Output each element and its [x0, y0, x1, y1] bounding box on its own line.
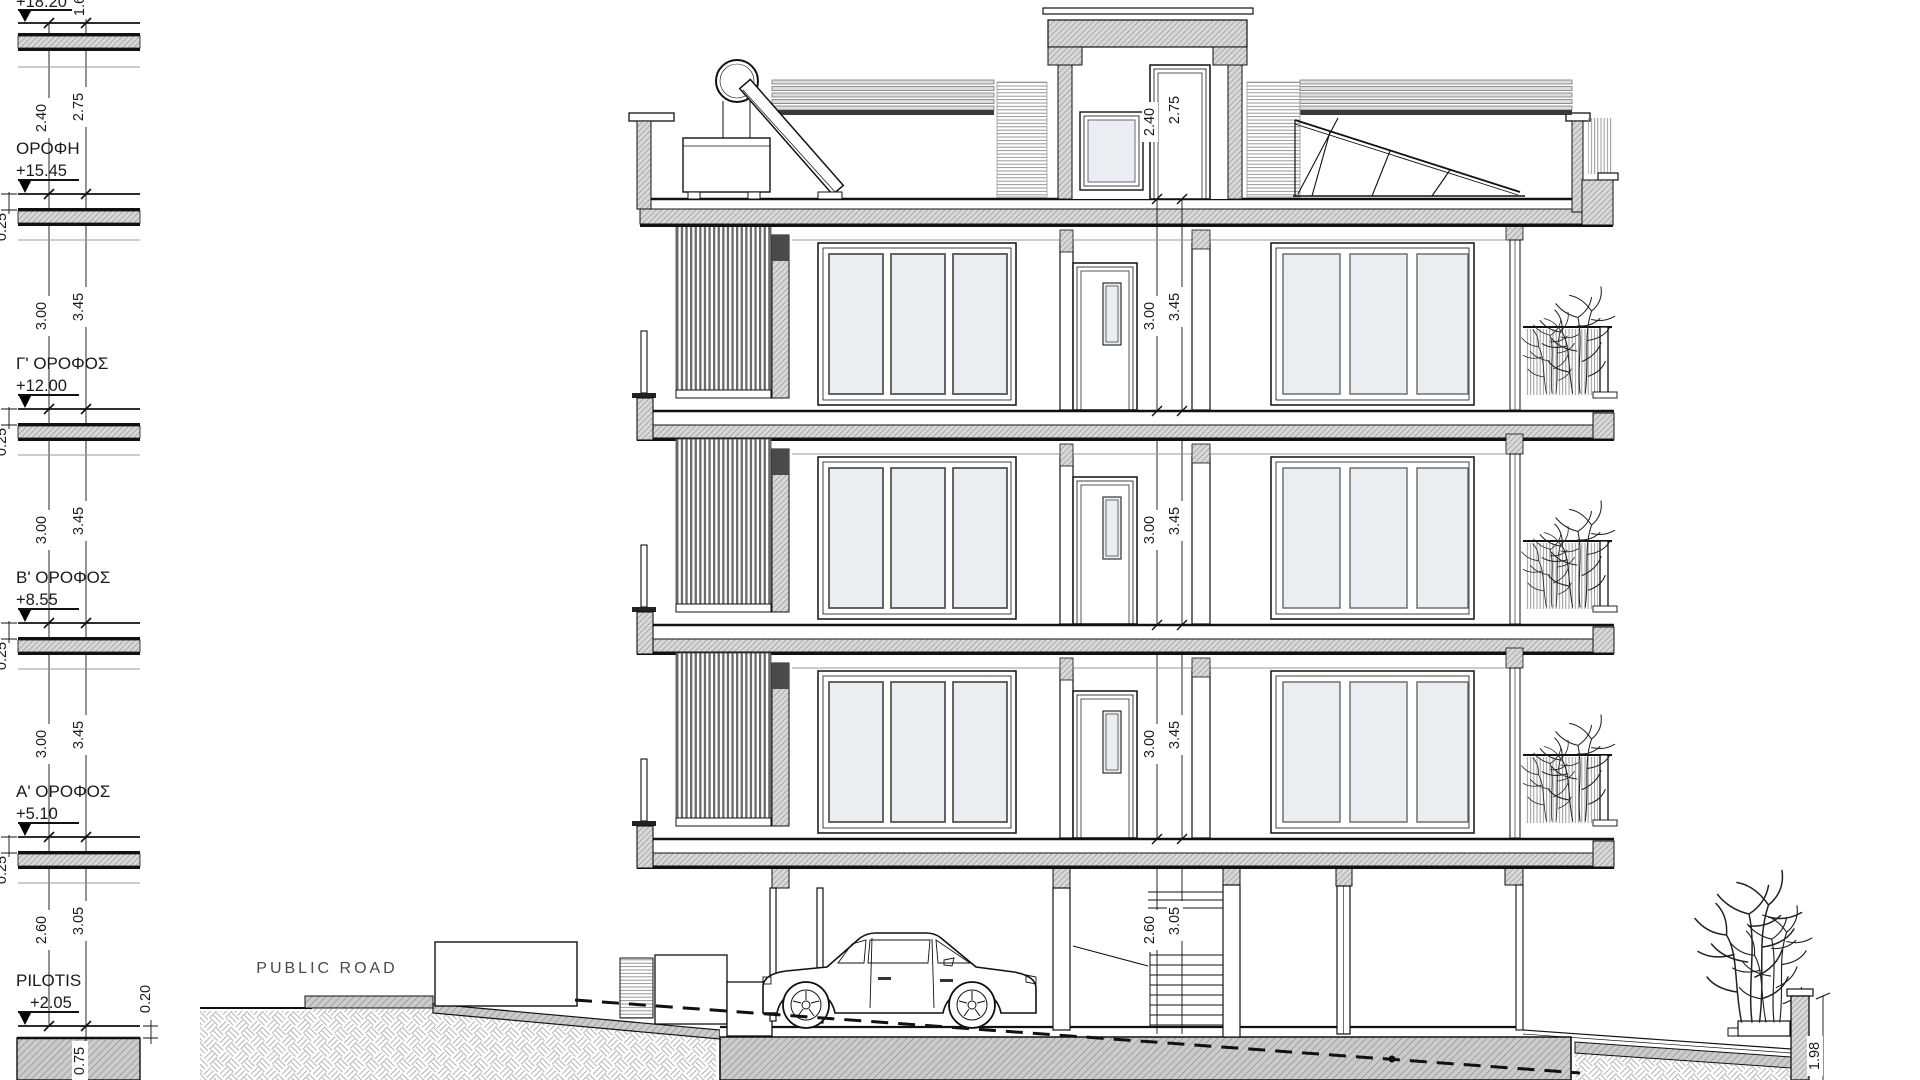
- level-name: PILOTIS: [16, 971, 81, 990]
- level-elevation: +2.05: [30, 994, 72, 1012]
- louver-screen: [1247, 82, 1300, 197]
- parapet-coping: [629, 113, 674, 121]
- datum-triangle-icon: [19, 11, 31, 22]
- dim-ground-slab: 0.75: [72, 1047, 88, 1075]
- datum-triangle-icon: [19, 396, 31, 408]
- datum-triangle-icon: [19, 181, 31, 193]
- planter-step: [1728, 1028, 1738, 1036]
- dim-floor-total: 3.45: [71, 293, 87, 321]
- wall-coping: [1787, 989, 1813, 996]
- tower-roof-slab: [1048, 20, 1247, 47]
- step-coping: [1598, 173, 1618, 180]
- dim-floor-step: 0.20: [138, 985, 158, 1044]
- left-dimension-column: +18.20 ΟΡΟΦΗ +15.45 Γ' ΟΡΟΦΟΣ +12.00 Β' …: [0, 0, 158, 1080]
- dim-roof-clear: 2.40: [1142, 108, 1158, 136]
- car-wheel: [783, 982, 829, 1028]
- sloped-canopy: [1293, 118, 1525, 196]
- dim-floor-total: 3.45: [71, 721, 87, 749]
- dim-rear-wall: 1.98: [1807, 993, 1830, 1080]
- pilotis-column: [1516, 885, 1523, 1030]
- pilotis-floor-strip: [720, 1028, 1523, 1037]
- dim-pilotis-clear: 2.60: [1142, 916, 1158, 944]
- roof-slab-hatch: [640, 209, 1613, 224]
- level-pilotis: PILOTIS +2.05: [16, 971, 140, 1031]
- dim-slab: 0.25: [0, 856, 10, 884]
- dim-pilotis-total: 3.05: [71, 907, 87, 935]
- level-floor2: Β' ΟΡΟΦΟΣ +8.55: [1, 568, 140, 643]
- svg-text:0.20: 0.20: [138, 985, 154, 1013]
- column-stub: [772, 866, 789, 888]
- level-elevation: +15.45: [16, 162, 67, 180]
- dim-floor-clear: 3.00: [34, 516, 50, 544]
- datum-triangle-icon: [19, 824, 31, 836]
- roof-screen-slats: [1588, 118, 1612, 174]
- dim-slab: 0.25: [0, 213, 10, 241]
- tower-wall-right: [1228, 47, 1242, 199]
- stair-core-wall-right: [1223, 885, 1240, 1037]
- stair-tower: 2.40 2.75: [1043, 8, 1253, 227]
- tower-door: [1150, 65, 1210, 199]
- tower-wall-left: [1058, 47, 1072, 199]
- level-roof: ΟΡΟΦΗ +15.45: [1, 139, 140, 214]
- earth-hatch-left: [200, 1009, 716, 1080]
- dim-pilotis-clear: 2.60: [34, 916, 50, 944]
- louvered-gate: [620, 958, 653, 1018]
- level-name: Γ' ΟΡΟΦΟΣ: [16, 354, 108, 373]
- dim-pilotis-total: 3.05: [1167, 907, 1183, 935]
- architectural-section-sheet: 3.00 3.45 +18.20: [0, 0, 1920, 1080]
- dim-slab: 0.25: [0, 428, 10, 456]
- dim-slab: 0.25: [0, 642, 10, 670]
- roof-level: 2.40 2.75: [629, 8, 1618, 227]
- core-wall-stub: [1053, 866, 1070, 888]
- tower-coping: [1043, 8, 1253, 14]
- ground-node-dot: [1389, 1056, 1396, 1063]
- street-boundary-wall: [435, 942, 577, 1006]
- tower-beam-right: [1213, 47, 1247, 65]
- datum-triangle-icon: [19, 610, 31, 622]
- parapet-left: [637, 121, 651, 209]
- tower-window: [1080, 112, 1143, 190]
- level-elevation: +12.00: [16, 377, 67, 395]
- dim-top-partial: 1.60: [72, 0, 88, 16]
- garden-wall: [655, 955, 727, 1024]
- car-wheel: [949, 982, 995, 1028]
- dim-floor-clear: 3.00: [34, 302, 50, 330]
- dim-floor-total: 3.45: [71, 507, 87, 535]
- sidewalk-kerb: [305, 996, 433, 1008]
- level-elevation: +8.55: [16, 591, 58, 609]
- planter-box: [1738, 1021, 1790, 1036]
- glass-pane: [1088, 120, 1135, 182]
- dim-roof-total: 2.75: [1167, 96, 1183, 124]
- parapet-step-block: [1582, 180, 1613, 225]
- tower-beam-left: [1048, 47, 1082, 65]
- level-elevation: +18.20: [16, 0, 67, 11]
- pilotis-level: 2.60 3.05: [435, 862, 1523, 1037]
- level-floor1: Α' ΟΡΟΦΟΣ +5.10: [1, 782, 140, 857]
- dim-roof-total: 2.75: [71, 93, 87, 121]
- public-road-label: PUBLIC ROAD: [256, 960, 397, 977]
- level-elevation: +5.10: [16, 805, 58, 823]
- level-name: Β' ΟΡΟΦΟΣ: [16, 568, 110, 587]
- dim-floor-clear: 3.00: [34, 730, 50, 758]
- level-name: ΟΡΟΦΗ: [16, 139, 80, 158]
- louver-screen: [997, 82, 1047, 197]
- svg-text:1.98: 1.98: [1807, 1042, 1823, 1070]
- building-section-drawing: 3.00 3.45 +18.20: [0, 0, 1920, 1080]
- stair-core-wall-left: [1053, 888, 1070, 1030]
- parapet-right: [1572, 121, 1583, 212]
- car: [763, 933, 1036, 1028]
- dim-roof-clear: 2.40: [34, 104, 50, 132]
- level-floor3: Γ' ΟΡΟΦΟΣ +12.00: [1, 354, 140, 429]
- level-name: Α' ΟΡΟΦΟΣ: [16, 782, 110, 801]
- datum-triangle-icon: [19, 1013, 31, 1025]
- foundation-mass: [720, 1037, 1571, 1080]
